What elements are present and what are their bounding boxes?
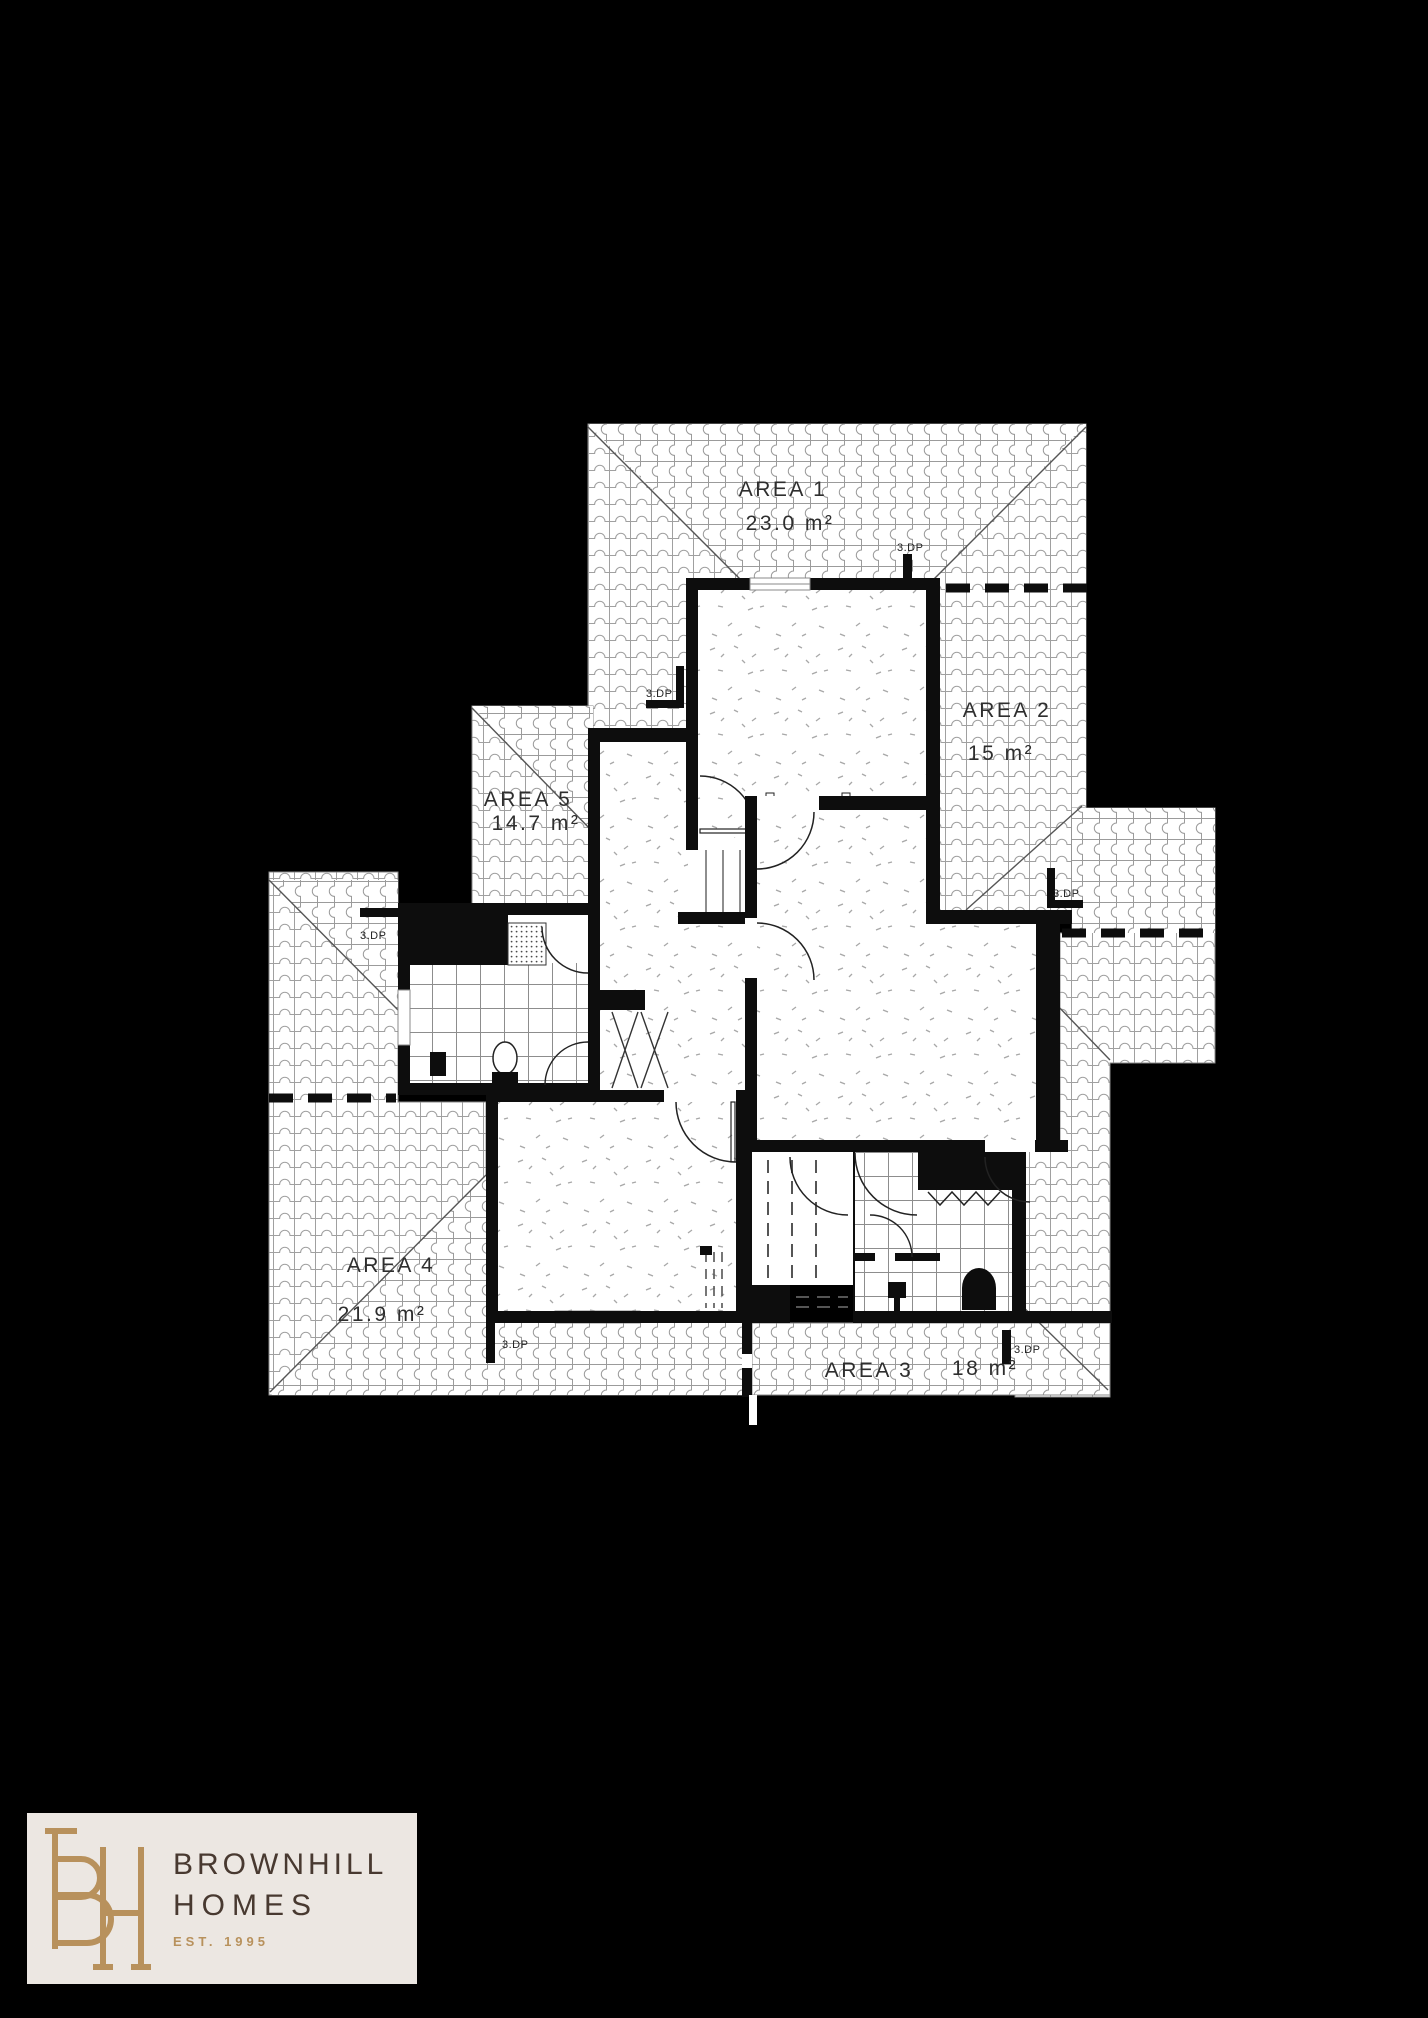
area-4-name: AREA 4: [347, 1254, 436, 1277]
window: [398, 990, 410, 1045]
vanity-block: [430, 1052, 446, 1076]
robe-lower-rails: [796, 1297, 848, 1307]
bh-monogram-icon: [41, 1825, 159, 1973]
brand-name-line2: HOMES: [173, 1889, 387, 1923]
bathroom-bulkhead: [410, 915, 508, 965]
toilet-icon: [962, 1268, 996, 1310]
wc-nib-a: [855, 1253, 875, 1261]
downpipe-label: 3.DP: [897, 542, 923, 554]
hall-nib-wall: [595, 990, 645, 1010]
hall-top-wall: [588, 728, 688, 742]
party-wall-stub: [749, 1395, 757, 1425]
area-1-size: 23.0 m²: [746, 512, 835, 535]
area-2-size: 15 m²: [968, 742, 1034, 765]
downpipe-label: 3.DP: [502, 1339, 528, 1351]
roof-area4-strip: [486, 1323, 742, 1395]
downpipe-tick: [1047, 900, 1083, 908]
floor-plan: 3.DP 3.DP 3.DP 3.DP 3.DP 3.DP AREA 1 23.…: [0, 0, 1428, 2018]
door-opening-hall: [745, 918, 757, 978]
area-3-size: 18 m²: [952, 1357, 1018, 1380]
robe-track-end: [700, 1246, 712, 1255]
downpipe-tick: [486, 1323, 495, 1363]
shower-hatch: [508, 923, 546, 965]
roof-right-north-face: [1072, 808, 1215, 933]
area-5-name: AREA 5: [484, 788, 573, 811]
floor-fixture: [888, 1282, 906, 1298]
brand-text-block: BROWNHILL HOMES EST. 1995: [173, 1848, 387, 1949]
door-opening: [664, 1090, 736, 1102]
downpipe-label: 3.DP: [1014, 1344, 1040, 1356]
downpipe-label: 3.DP: [646, 688, 672, 700]
bedroom-bottom-left: [486, 1090, 748, 1323]
bedroom-right-east-wall: [1036, 913, 1060, 1152]
robe-floor: [748, 1152, 853, 1285]
door-opening: [757, 796, 819, 810]
door-opening-ensuite: [985, 1140, 1035, 1152]
downpipe-tick: [903, 554, 912, 586]
wc-nib-b: [895, 1253, 940, 1261]
area-1-name: AREA 1: [739, 478, 828, 501]
toilet-icon: [493, 1042, 517, 1074]
bathroom-left: [398, 903, 600, 1095]
roof-area3-strip: [752, 1323, 1110, 1395]
area-4-size: 21.9 m²: [338, 1303, 427, 1326]
roof-strip-divider-notch: [742, 1354, 752, 1368]
brand-established: EST. 1995: [173, 1934, 387, 1949]
robe-nib-wall: [748, 1285, 790, 1323]
floor-fixture-stem: [894, 1298, 900, 1312]
bottom-wall-east: [853, 1311, 1112, 1323]
brand-name-line1: BROWNHILL: [173, 1848, 387, 1882]
downpipe-label: 3.DP: [1053, 888, 1079, 900]
downpipe-tick: [646, 700, 684, 708]
area-2-name: AREA 2: [963, 699, 1052, 722]
downpipe-label: 3.DP: [360, 930, 386, 942]
ensuite-east-wall: [1012, 1140, 1026, 1323]
brand-logo-panel: BROWNHILL HOMES EST. 1995: [27, 1813, 417, 1984]
toilet-cistern: [492, 1072, 518, 1083]
page-canvas: 3.DP 3.DP 3.DP 3.DP 3.DP 3.DP AREA 1 23.…: [0, 0, 1428, 2018]
bottom-wall-west: [486, 1311, 748, 1323]
area-5-size: 14.7 m²: [492, 812, 581, 835]
bedroom-bl-floor: [498, 1102, 736, 1311]
area-3-name: AREA 3: [825, 1359, 914, 1382]
downpipe-tick: [360, 908, 398, 917]
